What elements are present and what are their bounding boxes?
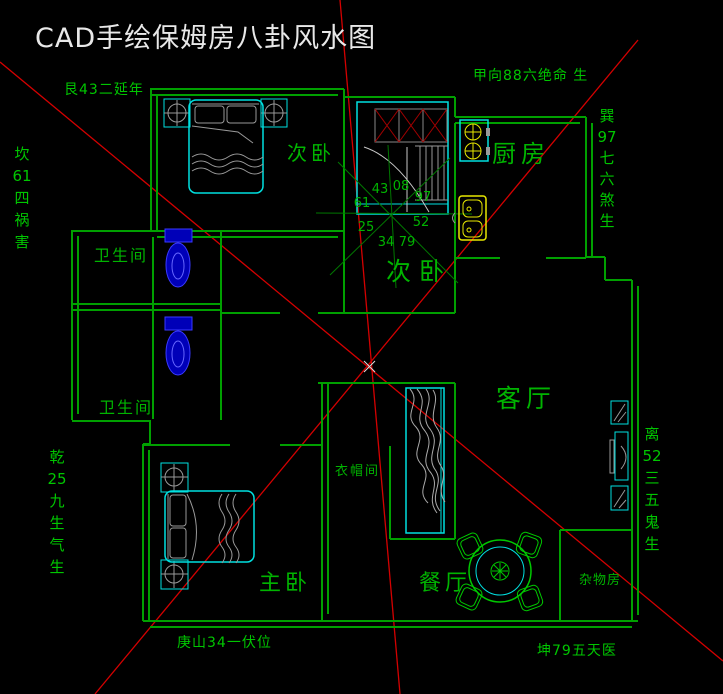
annotation-right-column: 离 52 三 五 鬼 生: [642, 425, 661, 553]
annotation-char: 煞: [599, 191, 614, 209]
pillow: [170, 495, 186, 526]
dining-chair: [455, 531, 484, 560]
pillow: [195, 106, 224, 123]
compass-number: 61: [354, 196, 371, 211]
room-label-bathroom-lower: 卫生间: [99, 398, 153, 417]
annotation-char: 生: [644, 535, 659, 553]
toilet-bowl: [166, 331, 190, 375]
stove-knob: [486, 128, 490, 136]
toilet-bowl: [166, 243, 190, 287]
bagua-line-nw-se: [0, 62, 723, 661]
annotation-char: 九: [49, 492, 64, 510]
annotation-left-column: 坎 61 四 祸 害: [12, 145, 31, 251]
bagua-annotations: 甲向88六绝命 生 艮43二延年 庚山34一伏位 坤79五天医 坎 61 四 祸…: [12, 67, 661, 659]
room-label-bathroom-upper: 卫生间: [94, 246, 148, 265]
tv-wall-units: [610, 401, 628, 510]
annotation-char: 巽: [599, 107, 614, 125]
room-label-dining: 餐厅: [419, 571, 471, 596]
red-bagua-lines: [0, 0, 723, 694]
sink-drain: [467, 228, 471, 232]
lamp-cross: [161, 561, 188, 588]
stove-outline: [460, 120, 488, 161]
annotation-char: 四: [14, 189, 29, 207]
cad-drawing-stage: 43 08 97 61 52 25 34 79: [0, 0, 723, 694]
kitchen-stove: [460, 120, 490, 161]
annotation-char: 五: [644, 491, 659, 509]
sink-basin: [463, 221, 482, 237]
compass-number: 25: [358, 220, 375, 235]
chair-seat: [519, 535, 540, 556]
annotation-char: 坎: [14, 145, 29, 163]
annotation-char: 离: [644, 425, 659, 443]
staircase: [357, 102, 448, 214]
staircase-hatch-x: [375, 109, 447, 142]
annotation-char: 生: [49, 558, 64, 576]
bagua-line-n-s: [340, 0, 400, 694]
bed-master: [161, 463, 254, 589]
speaker-detail: [614, 490, 626, 508]
pillow: [227, 106, 256, 123]
blanket-fold: [187, 494, 196, 560]
page-title: CAD手绘保姆房八卦风水图: [35, 23, 376, 54]
compass-number: 08: [393, 179, 410, 194]
annotation-char: 三: [644, 469, 659, 487]
dining-chair: [515, 531, 543, 559]
blanket-waves: [219, 494, 239, 563]
compass-number: 34: [378, 235, 395, 250]
kitchen-sink: [453, 196, 487, 240]
annotation-char: 乾: [49, 448, 64, 466]
annotation-char: 七: [599, 149, 614, 167]
toilet-lower: [165, 317, 192, 375]
chair-outline: [516, 584, 544, 612]
annotation-char: 97: [597, 128, 616, 146]
compass-number: 97: [415, 190, 432, 205]
room-label-cloakroom: 衣帽间: [335, 463, 380, 479]
annotation-char: 害: [14, 233, 29, 251]
stove-knob: [486, 147, 490, 155]
hanging-clothes: [410, 389, 428, 503]
annotation-bottom-right: 坤79五天医: [537, 643, 617, 659]
lamp-cross: [164, 100, 190, 126]
chair-seat: [459, 535, 480, 556]
annotation-char: 气: [49, 536, 64, 554]
wardrobe: [406, 388, 445, 533]
room-label-master: 主卧: [259, 571, 311, 596]
blanket-fold: [192, 126, 253, 143]
chair-outline: [515, 531, 543, 559]
table-center-star: [492, 563, 508, 579]
annotation-char: 六: [599, 170, 614, 188]
toilet-tank: [165, 317, 192, 330]
speaker-detail: [614, 404, 626, 422]
compass-number: 43: [372, 182, 389, 197]
lamp-cross: [261, 100, 287, 126]
room-label-kitchen: 厨房: [492, 140, 550, 168]
annotation-char: 52: [642, 447, 661, 465]
chair-outline: [455, 531, 484, 560]
staircase-outline: [357, 102, 448, 214]
toilet-tank: [165, 229, 192, 242]
blanket-waves: [192, 154, 263, 174]
room-label-living: 客厅: [496, 384, 556, 413]
bed-outline: [189, 100, 263, 193]
annotation-upper-left: 艮43二延年: [64, 82, 144, 98]
annotation-char: 鬼: [644, 513, 659, 531]
compass-number: 79: [399, 235, 416, 250]
floorplan-canvas: 43 08 97 61 52 25 34 79: [0, 0, 723, 694]
dining-chair: [516, 584, 544, 612]
annotation-top: 甲向88六绝命 生: [473, 67, 588, 84]
annotation-upper-right-column: 巽 97 七 六 煞 生: [597, 107, 616, 230]
compass-number: 52: [413, 215, 430, 230]
annotation-bottom-left: 庚山34一伏位: [177, 635, 272, 651]
tv-bracket: [610, 440, 614, 473]
room-label-bedroom-center: 次卧: [386, 257, 452, 286]
annotation-char: 25: [47, 470, 66, 488]
annotation-char: 生: [599, 212, 614, 230]
room-label-storage: 杂物房: [579, 572, 621, 588]
annotation-lower-left-column: 乾 25 九 生 气 生: [47, 448, 66, 576]
annotation-char: 祸: [14, 211, 29, 229]
bed-northwest: [164, 99, 287, 193]
room-label-bedroom-nw: 次卧: [287, 141, 335, 165]
annotation-char: 61: [12, 167, 31, 185]
sink-drain: [467, 207, 471, 211]
annotation-char: 生: [49, 514, 64, 532]
pillow: [170, 528, 186, 558]
toilet-upper: [165, 229, 192, 287]
tv-screen-arc: [621, 446, 626, 469]
lamp-cross: [161, 464, 188, 491]
chair-seat: [520, 588, 541, 609]
